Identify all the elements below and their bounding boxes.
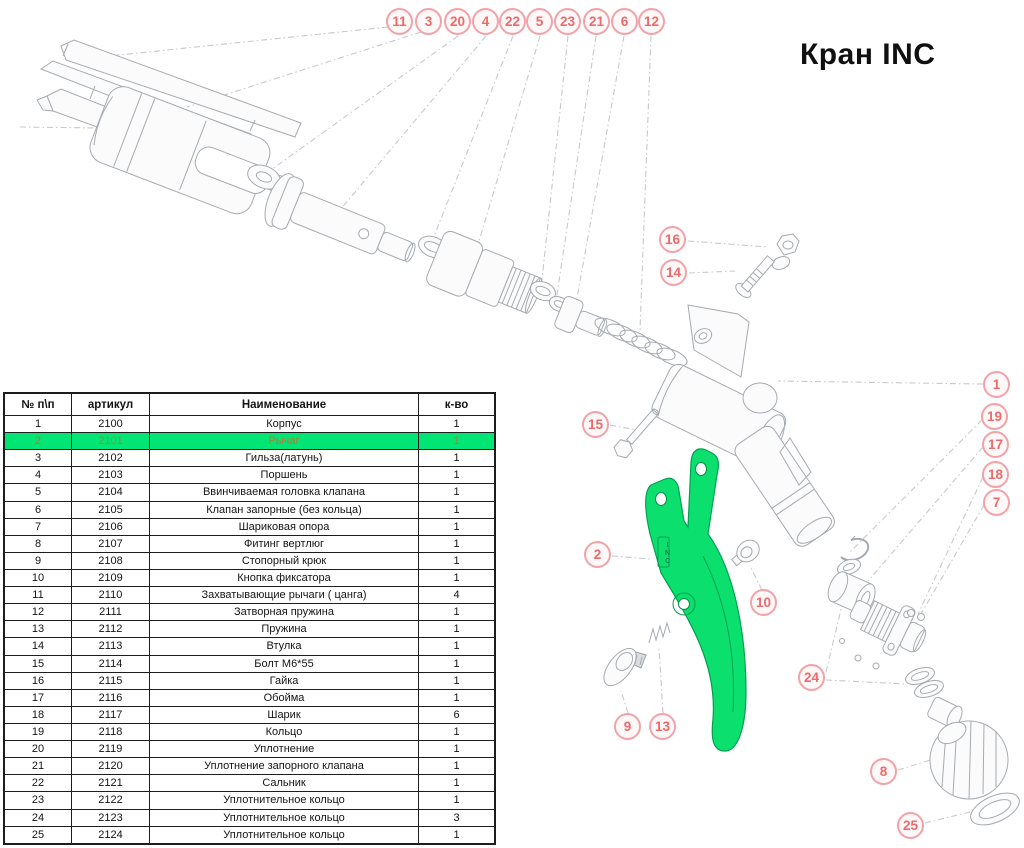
table-row: 252124Уплотнительное кольцо1 [4, 826, 495, 844]
callout-23: 23 [554, 8, 581, 35]
cell-qty: 1 [419, 672, 496, 689]
callout-11: 11 [386, 8, 413, 35]
table-row: 42103Поршень1 [4, 467, 495, 484]
cell-number: 21 [4, 758, 72, 775]
cell-article: 2106 [72, 518, 150, 535]
parts-table-header: № п\п артикул Наименование к-во [4, 393, 495, 416]
parts-table: № п\п артикул Наименование к-во 12100Кор… [3, 392, 496, 845]
column-header-name: Наименование [150, 393, 419, 416]
cell-qty: 1 [419, 484, 496, 501]
column-header-number: № п\п [4, 393, 72, 416]
cell-name: Уплотнение [150, 741, 419, 758]
cell-article: 2102 [72, 450, 150, 467]
cell-qty: 1 [419, 775, 496, 792]
cell-name: Кольцо [150, 723, 419, 740]
cell-name: Затворная пружина [150, 604, 419, 621]
cell-number: 20 [4, 741, 72, 758]
swivel-fitting-part [926, 695, 1008, 799]
table-row: 202119Уплотнение1 [4, 741, 495, 758]
table-row: 22101Рычаг1 [4, 433, 495, 450]
table-row: 12100Корпус1 [4, 416, 495, 433]
callout-2: 2 [584, 541, 611, 568]
table-row: 32102Гильза(латунь)1 [4, 450, 495, 467]
cell-qty: 3 [419, 809, 496, 826]
small-spring-part [649, 623, 670, 643]
circlip-part [841, 536, 868, 560]
callout-19: 19 [981, 403, 1008, 430]
callout-3: 3 [415, 8, 442, 35]
cell-number: 12 [4, 604, 72, 621]
cell-number: 19 [4, 723, 72, 740]
cell-name: Болт М6*55 [150, 655, 419, 672]
cell-name: Захватывающие рычаги ( цанга) [150, 587, 419, 604]
cell-qty: 1 [419, 689, 496, 706]
cell-qty: 1 [419, 604, 496, 621]
cell-name: Уплотнительное кольцо [150, 792, 419, 809]
callout-13: 13 [649, 713, 676, 740]
cell-name: Рычаг [150, 433, 419, 450]
cell-name: Фитинг вертлюг [150, 535, 419, 552]
cell-number: 3 [4, 450, 72, 467]
callout-6: 6 [611, 8, 638, 35]
callout-12: 12 [638, 8, 665, 35]
cell-number: 16 [4, 672, 72, 689]
parts-table-container: № п\п артикул Наименование к-во 12100Кор… [3, 392, 477, 845]
cell-number: 13 [4, 621, 72, 638]
cell-article: 2115 [72, 672, 150, 689]
cell-qty: 1 [419, 621, 496, 638]
table-row: 242123Уплотнительное кольцо3 [4, 809, 495, 826]
cell-article: 2109 [72, 569, 150, 586]
cell-name: Обойма [150, 689, 419, 706]
table-row: 62105Клапан запорные (без кольца)1 [4, 501, 495, 518]
cell-number: 5 [4, 484, 72, 501]
table-row: 72106Шариковая опора1 [4, 518, 495, 535]
cell-name: Шарик [150, 706, 419, 723]
cell-name: Гайка [150, 672, 419, 689]
bolt-upper-part [733, 253, 777, 300]
cell-name: Сальник [150, 775, 419, 792]
stop-hook-part [598, 643, 646, 691]
cell-qty: 1 [419, 450, 496, 467]
cell-name: Уплотнение запорного клапана [150, 758, 419, 775]
cell-qty: 1 [419, 569, 496, 586]
cell-qty: 1 [419, 416, 496, 433]
callout-21: 21 [583, 8, 610, 35]
cell-article: 2103 [72, 467, 150, 484]
cell-name: Уплотнительное кольцо [150, 809, 419, 826]
cell-qty: 4 [419, 587, 496, 604]
callout-8: 8 [870, 758, 897, 785]
cell-qty: 1 [419, 741, 496, 758]
cell-qty: 6 [419, 706, 496, 723]
callout-14: 14 [660, 259, 687, 286]
cell-name: Клапан запорные (без кольца) [150, 501, 419, 518]
cell-name: Втулка [150, 638, 419, 655]
cell-article: 2117 [72, 706, 150, 723]
callout-15: 15 [582, 411, 609, 438]
cell-article: 2120 [72, 758, 150, 775]
table-row: 142113Втулка1 [4, 638, 495, 655]
cell-name: Стопорный крюк [150, 552, 419, 569]
cell-name: Корпус [150, 416, 419, 433]
callout-4: 4 [472, 8, 499, 35]
cell-number: 7 [4, 518, 72, 535]
callout-7: 7 [983, 489, 1010, 516]
cell-qty: 1 [419, 758, 496, 775]
cell-name: Пружина [150, 621, 419, 638]
cell-article: 2111 [72, 604, 150, 621]
table-row: 132112Пружина1 [4, 621, 495, 638]
table-row: 232122Уплотнительное кольцо1 [4, 792, 495, 809]
cell-number: 14 [4, 638, 72, 655]
bolt-part [611, 405, 662, 461]
cell-qty: 1 [419, 723, 496, 740]
cell-number: 23 [4, 792, 72, 809]
cell-article: 2105 [72, 501, 150, 518]
cell-name: Шариковая опора [150, 518, 419, 535]
cell-name: Гильза(латунь) [150, 450, 419, 467]
cell-number: 10 [4, 569, 72, 586]
cell-qty: 1 [419, 792, 496, 809]
table-row: 212120Уплотнение запорного клапана1 [4, 758, 495, 775]
callout-10: 10 [750, 589, 777, 616]
nut-part [770, 234, 799, 272]
cell-qty: 1 [419, 535, 496, 552]
table-row: 102109Кнопка фиксатора1 [4, 569, 495, 586]
table-row: 182117Шарик6 [4, 706, 495, 723]
callout-25: 25 [897, 812, 924, 839]
cell-article: 2113 [72, 638, 150, 655]
cell-number: 18 [4, 706, 72, 723]
cell-article: 2118 [72, 723, 150, 740]
cell-qty: 1 [419, 638, 496, 655]
table-row: 192118Кольцо1 [4, 723, 495, 740]
callout-1: 1 [983, 371, 1010, 398]
cell-name: Уплотнительное кольцо [150, 826, 419, 844]
table-row: 52104Ввинчиваемая головка клапана1 [4, 484, 495, 501]
table-row: 152114Болт М6*551 [4, 655, 495, 672]
column-header-article: артикул [72, 393, 150, 416]
table-row: 162115Гайка1 [4, 672, 495, 689]
table-row: 82107Фитинг вертлюг1 [4, 535, 495, 552]
cell-qty: 1 [419, 552, 496, 569]
callout-24: 24 [798, 664, 825, 691]
cell-qty: 1 [419, 433, 496, 450]
cell-article: 2104 [72, 484, 150, 501]
cell-qty: 1 [419, 501, 496, 518]
cell-article: 2116 [72, 689, 150, 706]
piston-part [259, 170, 424, 280]
cell-article: 2100 [72, 416, 150, 433]
cell-name: Кнопка фиксатора [150, 569, 419, 586]
o-ring-pair-part [903, 664, 945, 701]
cell-article: 2110 [72, 587, 150, 604]
table-row: 172116Обойма1 [4, 689, 495, 706]
cell-article: 2101 [72, 433, 150, 450]
cell-name: Поршень [150, 467, 419, 484]
cell-number: 8 [4, 535, 72, 552]
cell-qty: 1 [419, 655, 496, 672]
sleeve-part [85, 82, 282, 221]
cell-article: 2112 [72, 621, 150, 638]
cell-number: 24 [4, 809, 72, 826]
cell-number: 2 [4, 433, 72, 450]
table-row: 112110Захватывающие рычаги ( цанга)4 [4, 587, 495, 604]
parts-diagram-page: INC Кран INC 113204225232161216141521091… [0, 0, 1024, 848]
cell-article: 2123 [72, 809, 150, 826]
cell-article: 2114 [72, 655, 150, 672]
lever-part-highlighted [646, 449, 746, 751]
valve-head-part [424, 229, 548, 324]
parts-table-body: 12100Корпус122101Рычаг132102Гильза(латун… [4, 416, 495, 845]
cell-article: 2122 [72, 792, 150, 809]
page-title: Кран INC [800, 38, 1020, 72]
cell-number: 9 [4, 552, 72, 569]
callout-18: 18 [982, 461, 1009, 488]
cell-number: 25 [4, 826, 72, 844]
cell-name: Ввинчиваемая головка клапана [150, 484, 419, 501]
callout-17: 17 [982, 431, 1009, 458]
callout-5: 5 [526, 8, 553, 35]
cell-number: 6 [4, 501, 72, 518]
lever-marking: INC [659, 538, 671, 570]
table-row: 222121Сальник1 [4, 775, 495, 792]
cell-article: 2124 [72, 826, 150, 844]
column-header-qty: к-во [419, 393, 496, 416]
cell-number: 1 [4, 416, 72, 433]
latch-button-part [728, 536, 764, 571]
cell-article: 2107 [72, 535, 150, 552]
cell-number: 11 [4, 587, 72, 604]
callout-9: 9 [614, 713, 641, 740]
callout-22: 22 [499, 8, 526, 35]
cell-number: 15 [4, 655, 72, 672]
cell-article: 2108 [72, 552, 150, 569]
cell-article: 2119 [72, 741, 150, 758]
callout-16: 16 [659, 226, 686, 253]
cell-number: 17 [4, 689, 72, 706]
cell-qty: 1 [419, 518, 496, 535]
cell-article: 2121 [72, 775, 150, 792]
table-row: 122111Затворная пружина1 [4, 604, 495, 621]
cell-number: 4 [4, 467, 72, 484]
cell-qty: 1 [419, 826, 496, 844]
cell-number: 22 [4, 775, 72, 792]
table-row: 92108Стопорный крюк1 [4, 552, 495, 569]
cell-qty: 1 [419, 467, 496, 484]
callout-20: 20 [444, 8, 471, 35]
